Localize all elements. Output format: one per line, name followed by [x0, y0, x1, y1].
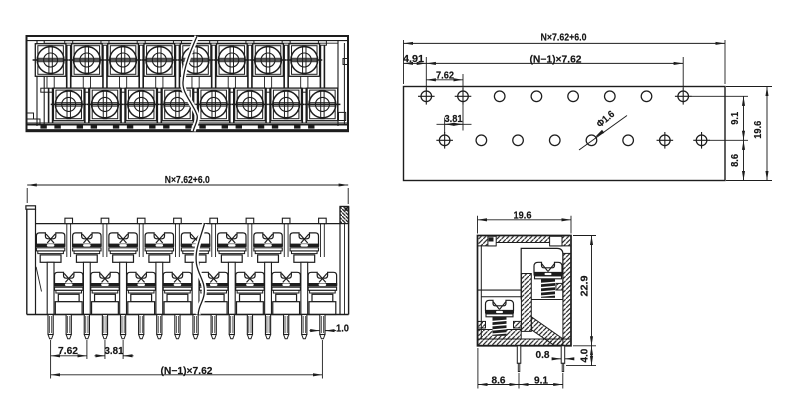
- svg-text:4.91: 4.91: [403, 54, 425, 65]
- svg-text:N×7.62+6.0: N×7.62+6.0: [541, 33, 587, 44]
- svg-text:1.0: 1.0: [336, 324, 350, 335]
- svg-text:8.6: 8.6: [730, 153, 741, 167]
- svg-text:3.81: 3.81: [105, 346, 125, 357]
- svg-text:3.81: 3.81: [445, 114, 464, 125]
- svg-text:N×7.62+6.0: N×7.62+6.0: [165, 175, 210, 186]
- svg-text:9.1: 9.1: [730, 111, 741, 125]
- svg-text:7.62: 7.62: [58, 346, 79, 357]
- svg-text:22.9: 22.9: [579, 275, 590, 297]
- svg-text:4.0: 4.0: [579, 348, 590, 363]
- svg-text:7.62: 7.62: [436, 70, 455, 81]
- svg-text:9.1: 9.1: [534, 375, 549, 386]
- svg-text:(N−1)×7.62: (N−1)×7.62: [161, 366, 214, 377]
- svg-text:19.6: 19.6: [753, 120, 764, 139]
- svg-text:(N−1)×7.62: (N−1)×7.62: [530, 55, 583, 66]
- svg-text:19.6: 19.6: [514, 210, 533, 221]
- svg-text:8.6: 8.6: [492, 375, 507, 386]
- svg-text:0.8: 0.8: [536, 350, 551, 361]
